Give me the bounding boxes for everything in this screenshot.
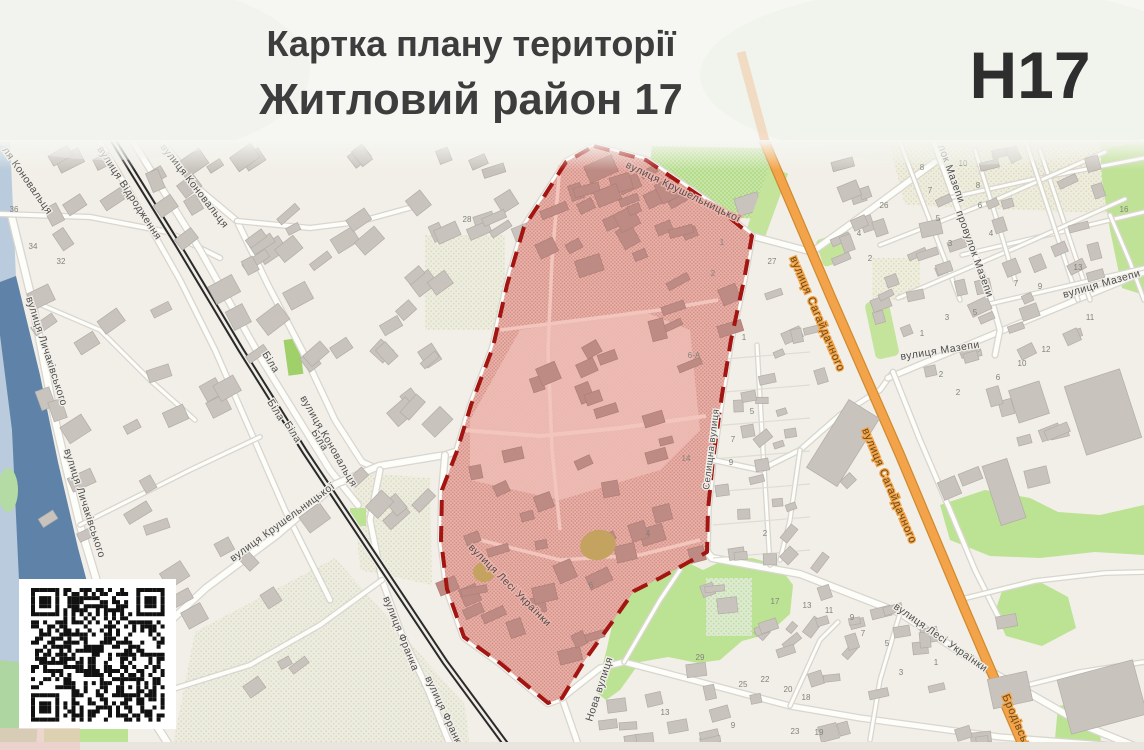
svg-text:29: 29 [696, 653, 705, 662]
svg-text:Картка плану території: Картка плану території [266, 23, 676, 64]
svg-text:5: 5 [885, 639, 890, 648]
svg-text:7: 7 [928, 186, 933, 195]
svg-text:6: 6 [996, 373, 1001, 382]
svg-text:7: 7 [1014, 279, 1019, 288]
svg-text:3: 3 [899, 668, 904, 677]
svg-text:1: 1 [920, 329, 925, 338]
svg-text:6: 6 [589, 581, 594, 590]
svg-text:6: 6 [978, 201, 983, 210]
svg-text:25: 25 [739, 680, 748, 689]
svg-text:16: 16 [1120, 205, 1129, 214]
svg-text:6-А: 6-А [688, 351, 701, 360]
svg-text:1: 1 [742, 333, 747, 342]
svg-text:5: 5 [936, 214, 941, 223]
svg-text:13: 13 [1074, 263, 1083, 272]
svg-text:11: 11 [825, 606, 834, 615]
svg-text:3: 3 [945, 313, 950, 322]
svg-text:2: 2 [939, 370, 944, 379]
svg-text:3: 3 [948, 239, 953, 248]
svg-text:27: 27 [768, 257, 777, 266]
svg-text:13: 13 [661, 708, 670, 717]
svg-text:4: 4 [857, 229, 862, 238]
svg-text:4: 4 [989, 229, 994, 238]
svg-text:2: 2 [711, 269, 716, 278]
svg-text:19: 19 [815, 728, 824, 737]
svg-text:4: 4 [646, 529, 651, 538]
svg-text:12: 12 [1042, 345, 1051, 354]
svg-text:9: 9 [1038, 282, 1043, 291]
svg-text:10: 10 [1018, 359, 1027, 368]
svg-text:34: 34 [29, 242, 38, 251]
svg-text:2: 2 [763, 529, 768, 538]
svg-text:18: 18 [802, 693, 811, 702]
svg-text:9: 9 [729, 458, 734, 467]
svg-text:7: 7 [731, 435, 736, 444]
svg-text:2: 2 [868, 254, 873, 263]
svg-text:8: 8 [976, 181, 981, 190]
svg-text:11: 11 [1086, 313, 1095, 322]
svg-text:2: 2 [956, 388, 961, 397]
svg-text:Н17: Н17 [969, 38, 1090, 112]
svg-text:1: 1 [720, 238, 725, 247]
svg-text:17: 17 [771, 597, 780, 606]
svg-text:32: 32 [57, 257, 66, 266]
svg-text:7: 7 [861, 629, 866, 638]
svg-text:22: 22 [761, 675, 770, 684]
svg-text:36: 36 [10, 205, 19, 214]
svg-text:14: 14 [682, 454, 691, 463]
svg-text:23: 23 [791, 727, 800, 736]
svg-text:9: 9 [731, 721, 736, 730]
svg-text:9: 9 [850, 613, 855, 622]
svg-text:20: 20 [784, 685, 793, 694]
svg-text:28: 28 [463, 215, 472, 224]
svg-text:1: 1 [934, 658, 939, 667]
svg-text:Житловий район 17: Житловий район 17 [258, 76, 683, 124]
svg-text:26: 26 [880, 201, 889, 210]
svg-text:5: 5 [973, 308, 978, 317]
svg-text:13: 13 [803, 601, 812, 610]
svg-text:5: 5 [750, 407, 755, 416]
